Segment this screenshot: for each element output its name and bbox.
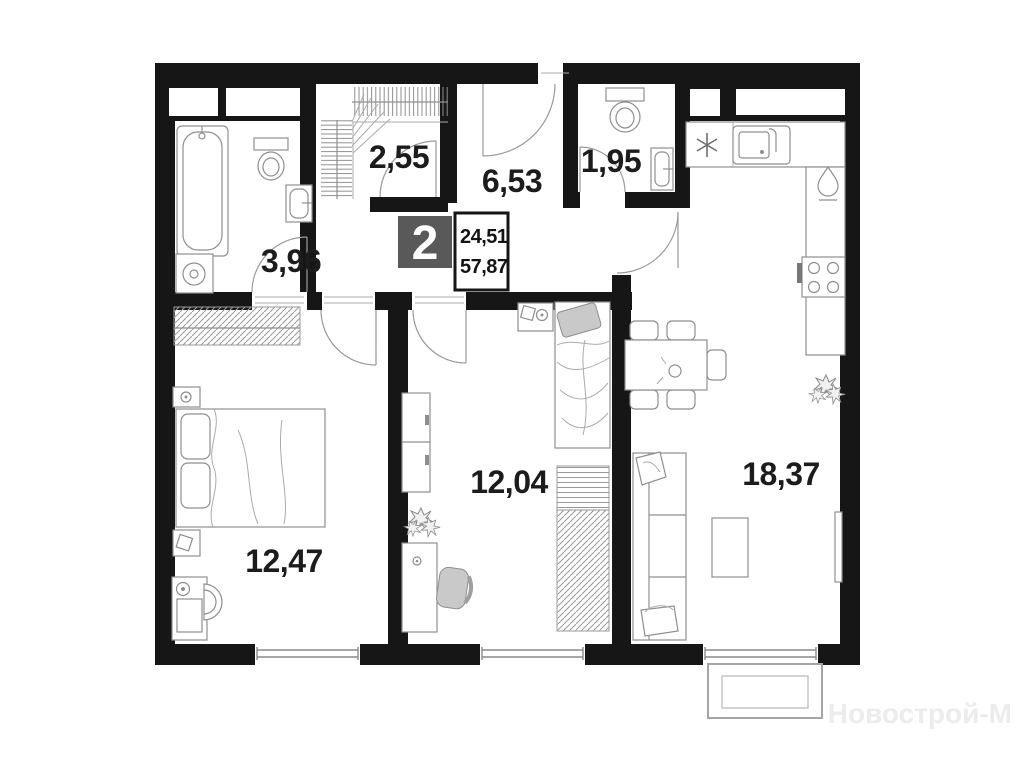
area-label-wc: 1,95 [581, 143, 641, 179]
area-label-wardrobe: 2,55 [369, 139, 429, 175]
sofa-icon [633, 452, 686, 640]
entrance-door-icon [483, 84, 555, 156]
area-label-bedroom-left: 12,47 [245, 543, 323, 579]
window-bedroom-middle [480, 644, 585, 665]
window-living [703, 644, 818, 665]
wardrobe-icon [402, 393, 430, 492]
toilet-icon [254, 138, 288, 180]
bedroom-left [172, 307, 325, 640]
living-area-value: 24,51 [460, 226, 508, 248]
floorplan-page: 2,55 6,53 1,95 3,96 12,47 12,04 18,37 2 … [0, 0, 1024, 768]
drying-rack-icon [557, 466, 609, 631]
bathtub-icon [177, 126, 228, 256]
wardrobe-hangers-icon [174, 307, 300, 345]
single-bed-icon [555, 302, 610, 448]
watermark: Новострой-М [828, 698, 1012, 729]
area-label-bedroom-middle: 12,04 [470, 464, 548, 500]
area-label-bathroom: 3,96 [261, 243, 321, 279]
dressing-table-icon [172, 577, 222, 640]
nightstand-icon [518, 303, 553, 331]
area-info-box: 24,51 57,87 [455, 213, 508, 290]
balcony [708, 664, 822, 718]
stove-icon [797, 257, 845, 297]
window-bedroom-left [255, 644, 360, 665]
coffee-table-icon [712, 518, 748, 577]
tv-icon [835, 512, 842, 582]
floorplan-canvas: 2,55 6,53 1,95 3,96 12,47 12,04 18,37 2 … [0, 0, 1024, 768]
desk-icon [402, 543, 437, 632]
washing-machine-icon [176, 254, 213, 293]
office-chair-icon [435, 566, 473, 610]
side-table-icon [173, 530, 200, 556]
dining-table-icon [625, 321, 726, 409]
kitchen-door-icon [617, 212, 678, 273]
rooms-count-value: 2 [412, 217, 439, 270]
double-bed-icon [176, 409, 325, 527]
total-area-value: 57,87 [460, 256, 508, 278]
plant-icon [402, 508, 443, 540]
bedroom-middle-door-icon [413, 297, 466, 363]
bathroom-sink-icon [286, 185, 312, 222]
rooms-count-badge: 2 [398, 216, 452, 270]
area-label-kitchen-living: 18,37 [742, 456, 820, 492]
wc-sink-icon [651, 148, 673, 190]
area-label-hallway: 6,53 [482, 163, 542, 199]
nightstand-icon [173, 387, 200, 407]
wc-toilet-icon [606, 88, 644, 132]
kitchen-sink-icon [733, 126, 790, 164]
bedroom-left-door-icon [321, 297, 376, 365]
chair-icon [204, 584, 222, 620]
